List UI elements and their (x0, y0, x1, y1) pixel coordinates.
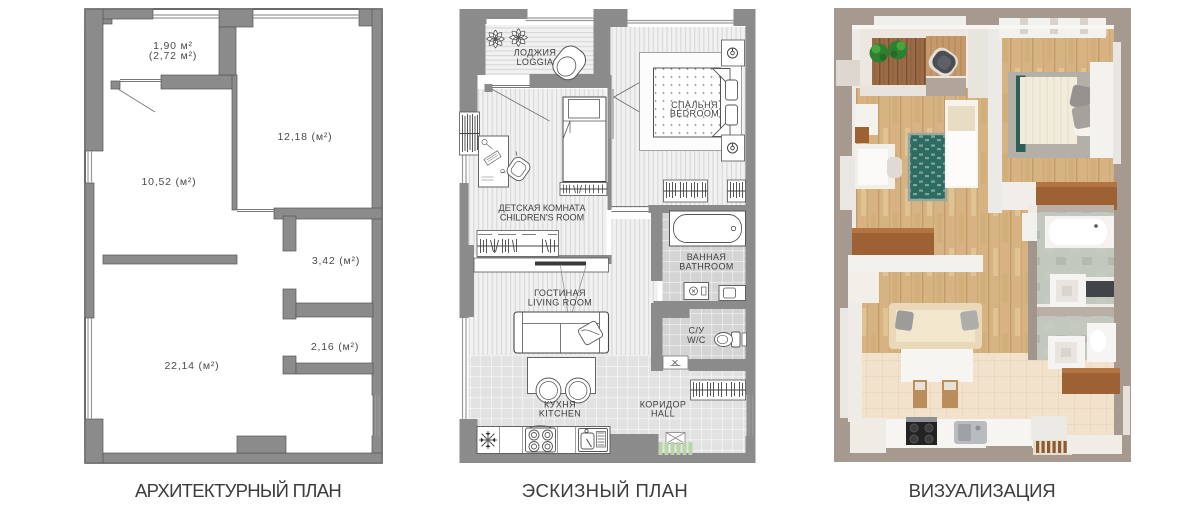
svg-text:W/C: W/C (687, 335, 706, 345)
svg-text:BATHROOM: BATHROOM (679, 262, 734, 272)
svg-text:ВИЗУАЛИЗАЦИЯ: ВИЗУАЛИЗАЦИЯ (909, 480, 1056, 501)
svg-text:KITCHEN: KITCHEN (539, 409, 581, 419)
svg-text:12,18 (м²): 12,18 (м²) (278, 131, 333, 143)
svg-text:ВАННАЯ: ВАННАЯ (687, 252, 727, 262)
svg-text:ГОСТИНАЯ: ГОСТИНАЯ (534, 288, 586, 298)
svg-text:LOGGIA: LOGGIA (517, 57, 554, 67)
svg-text:ЭСКИЗНЫЙ ПЛАН: ЭСКИЗНЫЙ ПЛАН (522, 480, 688, 501)
svg-text:LIVING ROOM: LIVING ROOM (528, 298, 592, 308)
svg-text:АРХИТЕКТУРНЫЙ ПЛАН: АРХИТЕКТУРНЫЙ ПЛАН (135, 480, 341, 501)
svg-text:BEDROOM: BEDROOM (670, 109, 719, 119)
svg-text:ДЕТСКАЯ КОМНАТА: ДЕТСКАЯ КОМНАТА (499, 203, 586, 213)
svg-text:(2,72 м²): (2,72 м²) (149, 50, 197, 62)
svg-text:22,14 (м²): 22,14 (м²) (165, 360, 220, 372)
svg-text:CHILDREN'S ROOM: CHILDREN'S ROOM (500, 213, 584, 223)
svg-text:ЛОДЖИЯ: ЛОДЖИЯ (514, 48, 556, 58)
svg-text:HALL: HALL (651, 409, 675, 419)
svg-text:С/У: С/У (689, 326, 705, 336)
svg-text:3,42 (м²): 3,42 (м²) (312, 255, 360, 267)
svg-text:10,52 (м²): 10,52 (м²) (142, 176, 197, 188)
svg-text:2,16 (м²): 2,16 (м²) (311, 341, 359, 353)
